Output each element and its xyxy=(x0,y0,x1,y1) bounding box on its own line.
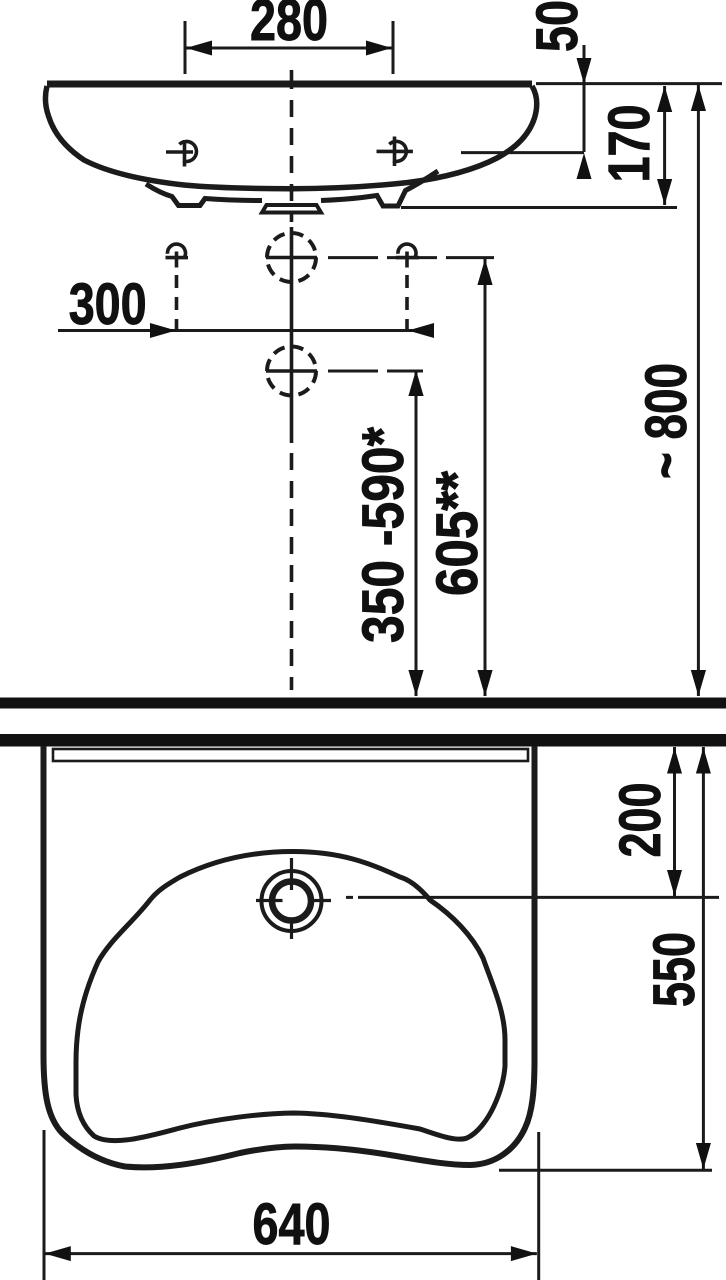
svg-text:605**: 605** xyxy=(425,471,490,596)
svg-text:550: 550 xyxy=(642,932,707,1007)
svg-text:50: 50 xyxy=(525,0,590,52)
svg-text:300: 300 xyxy=(69,272,147,337)
svg-text:200: 200 xyxy=(608,783,673,858)
svg-text:640: 640 xyxy=(253,1192,331,1257)
svg-text:350 -590*: 350 -590* xyxy=(351,427,416,643)
svg-text:~ 800: ~ 800 xyxy=(634,363,699,479)
svg-text:280: 280 xyxy=(250,0,328,53)
svg-text:170: 170 xyxy=(597,105,662,183)
